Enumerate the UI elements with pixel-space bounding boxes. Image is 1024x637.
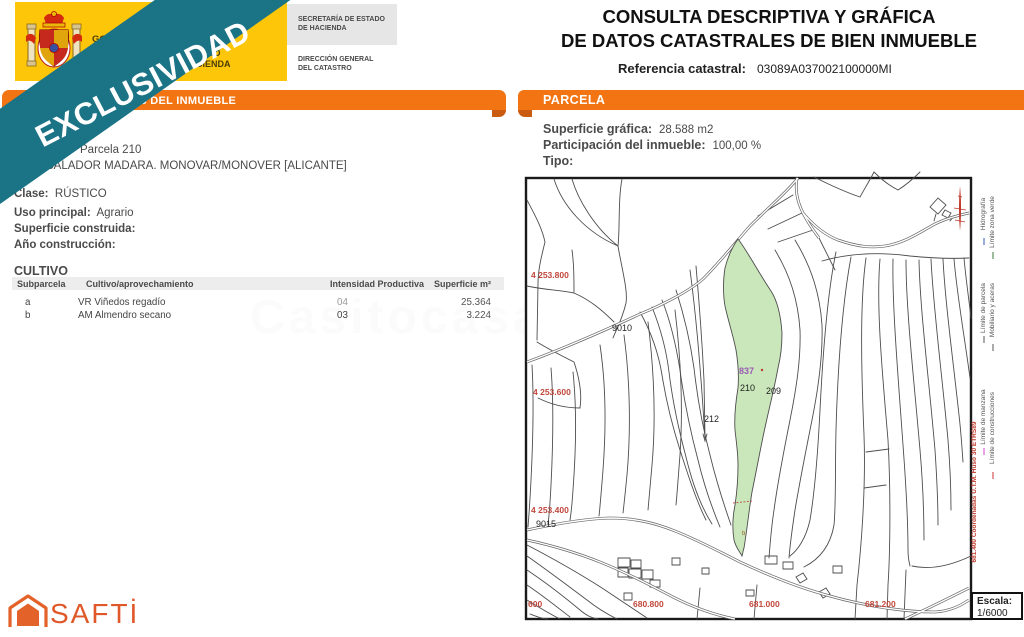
svg-text:4 253.800: 4 253.800 bbox=[531, 270, 569, 280]
svg-text:Mobiliario y aceras: Mobiliario y aceras bbox=[989, 282, 996, 337]
svg-text:Hidrografía: Hidrografía bbox=[980, 198, 987, 231]
svg-text:681.200: 681.200 bbox=[865, 599, 896, 609]
svg-text:Límite zona verde: Límite zona verde bbox=[989, 196, 996, 248]
svg-text:210: 210 bbox=[740, 383, 755, 393]
svg-text:9015: 9015 bbox=[536, 519, 556, 529]
svg-text:681.400 Coordenadas U.T.M. Hus: 681.400 Coordenadas U.T.M. Huso 30 ETRS8… bbox=[971, 421, 978, 562]
svg-text:Límite de manzana: Límite de manzana bbox=[980, 389, 987, 445]
svg-text:Límite de construcciones: Límite de construcciones bbox=[989, 391, 996, 464]
svg-text:837: 837 bbox=[739, 366, 754, 376]
svg-text:9010: 9010 bbox=[612, 323, 632, 333]
svg-text:Límite de parcela: Límite de parcela bbox=[980, 283, 987, 333]
svg-text:1/6000: 1/6000 bbox=[977, 608, 1008, 619]
svg-text:4 253.600: 4 253.600 bbox=[533, 387, 571, 397]
svg-text:209: 209 bbox=[766, 386, 781, 396]
svg-text:681.000: 681.000 bbox=[749, 599, 780, 609]
svg-text:Escala:: Escala: bbox=[977, 596, 1012, 607]
svg-text:680.800: 680.800 bbox=[633, 599, 664, 609]
svg-text:4 253.400: 4 253.400 bbox=[531, 505, 569, 515]
svg-text:212: 212 bbox=[704, 414, 719, 424]
svg-text:600: 600 bbox=[528, 599, 542, 609]
